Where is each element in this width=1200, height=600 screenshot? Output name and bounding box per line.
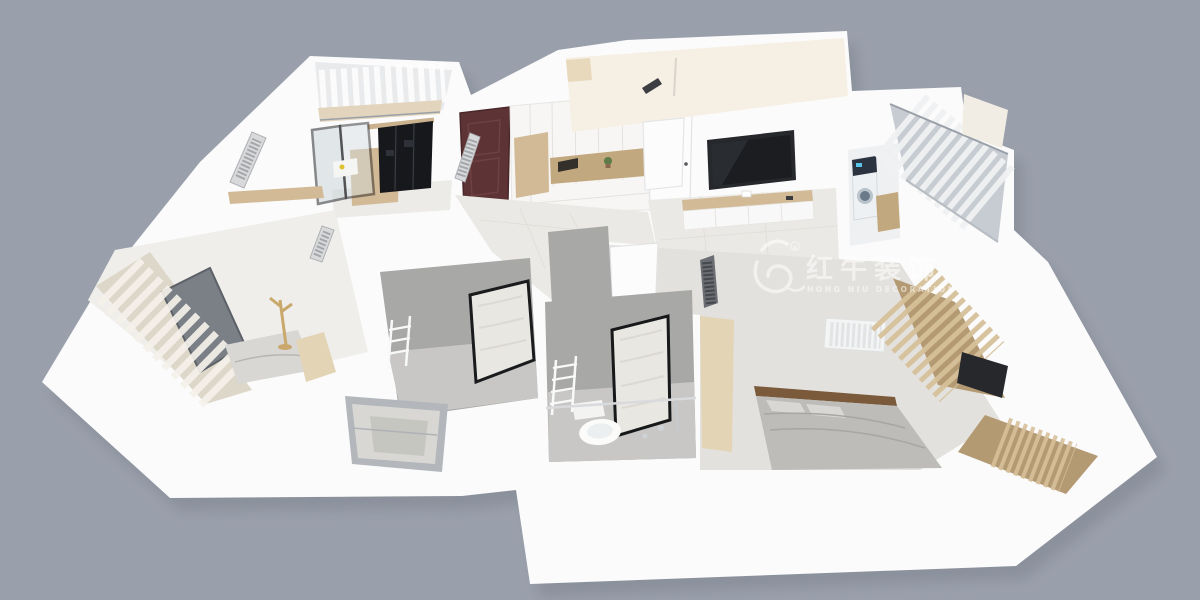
kitchen-black-cabinets xyxy=(378,121,433,193)
floorplan-svg: R 红牛装饰 HONG NIU DECORATION xyxy=(0,0,1200,600)
shelf-plant xyxy=(604,157,612,165)
laundry-cabinet xyxy=(876,192,900,232)
room-balcony-northwest xyxy=(315,62,452,122)
master-wardrobe-left xyxy=(700,316,734,452)
watermark-brand-en: HONG NIU DECORATION xyxy=(807,285,957,294)
door-handle xyxy=(684,162,688,166)
watermark-brand-cn: 红牛装饰 xyxy=(806,253,942,285)
entry-niche xyxy=(514,132,549,198)
console-device xyxy=(786,196,793,200)
room-bathroom-second xyxy=(380,258,538,418)
console-frame-deco xyxy=(742,191,751,197)
floorplan-render: R 红牛装饰 HONG NIU DECORATION xyxy=(0,0,1200,600)
master-door xyxy=(610,243,658,298)
registered-mark: R xyxy=(793,246,797,252)
room-kitchen xyxy=(312,120,452,218)
kitchen-dish xyxy=(340,165,345,170)
window-sash xyxy=(370,416,428,456)
living-door-white xyxy=(643,118,684,190)
exterior-window xyxy=(345,396,448,472)
